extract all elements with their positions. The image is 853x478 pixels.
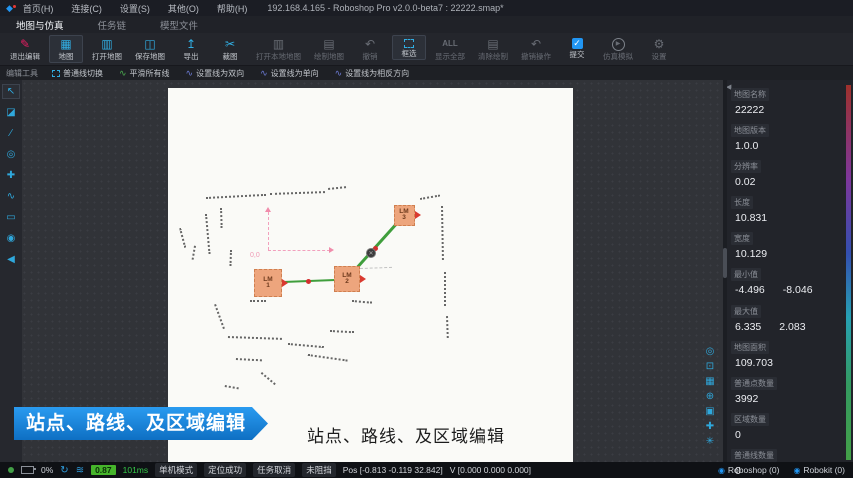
smooth-all-lines[interactable]: ∿ 平滑所有线 xyxy=(119,68,170,79)
toolbar-label: 打开本地地图 xyxy=(256,52,301,61)
toolbar-label: 撤销 xyxy=(363,52,378,61)
settings-button[interactable]: ⚙ 设置 xyxy=(642,35,676,63)
curve-tool[interactable]: ∿ xyxy=(2,189,20,204)
view-control-icon: ⊡ xyxy=(706,361,714,372)
map-sheet[interactable] xyxy=(168,88,573,462)
panel-row-label: 地图面积 xyxy=(731,341,769,354)
station-tool[interactable]: ◉ xyxy=(2,231,20,246)
toolbar-icon: ↥ xyxy=(186,37,196,51)
view-control-icon: ▣ xyxy=(705,406,714,417)
robot-marker[interactable]: ✕ xyxy=(366,248,376,258)
curve-icon: ∿ xyxy=(335,68,343,79)
commit-button[interactable]: ✓ 提交 xyxy=(560,35,594,61)
lidar-wall-segment xyxy=(444,272,446,306)
curve-icon xyxy=(52,70,60,77)
toolbar-label: 清除绘制 xyxy=(478,52,508,61)
curve-icon: ∿ xyxy=(186,68,194,79)
panel-row-label: 最小值 xyxy=(731,268,761,281)
rail-tool-icon: ▭ xyxy=(6,212,15,223)
panel-row-label: 地图名称 xyxy=(731,88,769,101)
reset-view-button[interactable]: ✳ xyxy=(706,436,714,448)
toolbar-icon: ALL xyxy=(442,37,458,51)
crop-map-button[interactable]: ✂ 裁图 xyxy=(213,35,247,63)
panel-row-value: 22222 xyxy=(735,104,843,116)
toolbar-label: 地图 xyxy=(59,52,74,61)
rail-tool-icon: ↖ xyxy=(7,86,15,97)
toolbar-icon: ▶ xyxy=(612,38,625,51)
toolbar-label: 裁图 xyxy=(223,52,238,61)
select-tool[interactable]: ↖ xyxy=(2,84,20,99)
pan-button[interactable]: ✚ xyxy=(706,421,714,433)
back-tool[interactable]: ◀ xyxy=(2,252,20,267)
toolbar-icon: ▤ xyxy=(487,37,498,51)
status-bar: 0% ↻ ≋ 0.87 101ms 单机模式定位成功任务取消未阻挡 Pos [-… xyxy=(0,462,853,478)
toolbar-label: 退出编辑 xyxy=(10,52,40,61)
edit-tool-label: 设置线为双向 xyxy=(196,68,244,79)
panel-row: 地图版本 1.0.0 xyxy=(731,120,843,152)
panel-row-value: 0 xyxy=(735,465,843,477)
edit-tool-label: 设置线为单向 xyxy=(271,68,319,79)
rail-tool-icon: ✚ xyxy=(7,170,15,181)
tab-model-files[interactable]: 模型文件 xyxy=(156,16,202,34)
panel-row-label: 宽度 xyxy=(731,232,753,245)
velocity-readout: V [0.000 0.000 0.000] xyxy=(450,465,531,475)
main-toolbar: ✎ 退出编辑 ▦ 地图 ▥ 打开地图 ◫ 保存地图 ↥ 导出 xyxy=(0,33,853,66)
toolbar-label: 导出 xyxy=(184,52,199,61)
view-control-icon: ✚ xyxy=(706,421,714,432)
simulate-button[interactable]: ▶ 仿真模拟 xyxy=(599,35,637,63)
panel-row-value: 10.129 xyxy=(735,248,843,260)
menu-help[interactable]: 帮助(H) xyxy=(217,2,248,15)
export-button[interactable]: ↥ 导出 xyxy=(174,35,208,63)
panel-row-label: 区域数量 xyxy=(731,413,769,426)
station-number: 1 xyxy=(266,283,270,290)
panel-row-value: 3992 xyxy=(735,393,843,405)
panel-rows: 地图名称 22222 地图版本 1.0.0 分辨率 0.02 xyxy=(731,84,843,478)
status-chip: 未阻挡 xyxy=(302,463,336,477)
status-chips: 单机模式定位成功任务取消未阻挡 xyxy=(155,463,336,477)
panel-row-value: 0 xyxy=(735,429,843,441)
edit-tools-row: 编辑工具 普通线切换 ∿ 平滑所有线 ∿ 设置线为双向 xyxy=(0,66,853,80)
rail-tool-icon: ◎ xyxy=(7,149,16,160)
properties-panel: ◀ 地图名称 22222 地图版本 1.0.0 xyxy=(723,80,853,462)
toolbar-label: 绘制地图 xyxy=(314,52,344,61)
move-tool[interactable]: ✚ xyxy=(2,168,20,183)
tab-map-simulation[interactable]: 地图与仿真 xyxy=(12,16,68,34)
station-number: 2 xyxy=(345,279,349,286)
status-dot-icon xyxy=(8,467,14,473)
connection-dot-icon: ◉ xyxy=(718,466,725,475)
edit-tool-label: 设置线为相反方向 xyxy=(345,68,409,79)
point-tool[interactable]: ◎ xyxy=(2,147,20,162)
station-LM3[interactable]: LM3 xyxy=(394,205,415,226)
menubar: 首页(H)连接(C)设置(S)其他(O)帮助(H) xyxy=(23,2,248,15)
panel-row-label: 地图版本 xyxy=(731,124,769,137)
battery-icon xyxy=(21,466,34,474)
panel-row-value: 1.0.0 xyxy=(735,140,843,152)
tutorial-banner: 站点、路线、及区域编辑 xyxy=(14,407,268,440)
menu-other[interactable]: 其他(O) xyxy=(168,2,199,15)
station-direction-arrow-icon xyxy=(282,279,288,287)
panel-row: 宽度 10.129 xyxy=(731,228,843,260)
set-line-oneway[interactable]: ∿ 设置线为单向 xyxy=(260,68,319,79)
app-window: ◆ 首页(H)连接(C)设置(S)其他(O)帮助(H) 192.168.4.16… xyxy=(0,0,853,478)
panel-row: 长度 10.831 xyxy=(731,192,843,224)
undo-op-button[interactable]: ↶ 撤销操作 xyxy=(517,35,555,63)
rail-tool-icon: ◉ xyxy=(7,233,16,244)
toolbar-label: 仿真模拟 xyxy=(603,52,633,61)
waypoint-dot[interactable] xyxy=(306,279,311,284)
station-direction-arrow-icon xyxy=(415,211,421,219)
station-LM1[interactable]: LM1 xyxy=(254,269,282,297)
menu-home[interactable]: 首页(H) xyxy=(23,2,54,15)
toolbar-icon: ▦ xyxy=(60,37,71,51)
layers-button[interactable]: ▣ xyxy=(705,406,714,418)
curve-icon: ∿ xyxy=(119,68,127,79)
panel-row: 普通点数量 3992 xyxy=(731,373,843,405)
edit-tools-label: 编辑工具 xyxy=(6,68,38,79)
toolbar-icon: ✎ xyxy=(20,37,30,51)
fit-view-button[interactable]: ⊡ xyxy=(706,361,714,373)
wifi-icon[interactable]: ≋ xyxy=(76,465,84,476)
set-line-reverse[interactable]: ∿ 设置线为相反方向 xyxy=(335,68,410,79)
save-map-button[interactable]: ◫ 保存地图 xyxy=(131,35,169,63)
show-all-button[interactable]: ALL 显示全部 xyxy=(431,35,469,63)
panel-row: 区域数量 0 xyxy=(731,409,843,441)
edit-tool-buttons: 普通线切换 ∿ 平滑所有线 ∿ 设置线为双向 ∿ 设置线为单向 xyxy=(52,68,409,79)
lidar-wall-segment xyxy=(250,300,266,302)
tab-row: 地图与仿真任务链模型文件 xyxy=(0,16,853,33)
localization-score: 0.87 xyxy=(91,465,116,475)
toolbar-icon xyxy=(404,39,414,48)
toolbar-icon: ↶ xyxy=(365,37,375,51)
clear-draw-button[interactable]: ▤ 清除绘制 xyxy=(474,35,512,63)
app-logo-icon: ◆ xyxy=(6,3,13,14)
panel-row-value: 10.831 xyxy=(735,212,843,224)
tab-task-chain[interactable]: 任务链 xyxy=(94,16,131,34)
view-control-icon: ◎ xyxy=(706,346,715,357)
view-control-icon: ▦ xyxy=(705,376,714,387)
window-title: 192.168.4.165 - Roboshop Pro v2.0.0-beta… xyxy=(267,3,503,13)
open-local-map-button[interactable]: ▥ 打开本地地图 xyxy=(252,35,305,63)
map-button[interactable]: ▦ 地图 xyxy=(49,35,83,63)
titlebar: ◆ 首页(H)连接(C)设置(S)其他(O)帮助(H) 192.168.4.16… xyxy=(0,0,853,16)
panel-row-label: 普通点数量 xyxy=(731,377,777,390)
toolbar-icon: ▤ xyxy=(323,37,334,51)
panel-row: 地图名称 22222 xyxy=(731,84,843,116)
rail-tool-icon: ◀ xyxy=(7,254,15,265)
toolbar-label: 提交 xyxy=(570,50,585,59)
panel-row-value: 6.3352.083 xyxy=(735,321,843,333)
station-LM2[interactable]: LM2 xyxy=(334,266,360,292)
status-chip: 单机模式 xyxy=(155,463,197,477)
battery-percent: 0% xyxy=(41,465,53,475)
toolbar-label: 保存地图 xyxy=(135,52,165,61)
panel-row-value: 109.703 xyxy=(735,357,843,369)
panel-row-value: 0.02 xyxy=(735,176,843,188)
panel-row-label: 普通线数量 xyxy=(731,449,777,462)
curve-icon: ∿ xyxy=(260,68,268,79)
grid-toggle-button[interactable]: ▦ xyxy=(705,376,714,388)
station-direction-arrow-icon xyxy=(360,275,366,283)
toolbar-label: 显示全部 xyxy=(435,52,465,61)
toolbar-icon: ✂ xyxy=(225,37,235,51)
normal-line-toggle[interactable]: 普通线切换 xyxy=(52,68,103,79)
toolbar-icon: ▥ xyxy=(101,37,112,51)
rail-tool-icon: ∕ xyxy=(10,128,12,139)
toolbar-icon: ⚙ xyxy=(654,37,665,51)
origin-x-axis xyxy=(268,250,330,251)
color-scale-strip xyxy=(846,85,851,460)
rail-tool-icon: ∿ xyxy=(7,191,15,202)
draw-map-button[interactable]: ▤ 绘制地图 xyxy=(310,35,348,63)
position-readout: Pos [-0.813 -0.119 32.842] xyxy=(343,465,443,475)
status-chip: 定位成功 xyxy=(204,463,246,477)
undo-button[interactable]: ↶ 撤销 xyxy=(353,35,387,63)
locate-view-button[interactable]: ◎ xyxy=(706,346,715,358)
eraser-tool[interactable]: ◪ xyxy=(2,105,20,120)
toolbar-icon: ↶ xyxy=(531,37,541,51)
edit-tool-label: 普通线切换 xyxy=(63,68,103,79)
line-tool[interactable]: ∕ xyxy=(2,126,20,141)
exit-edit-button[interactable]: ✎ 退出编辑 xyxy=(6,35,44,63)
panel-row-value: -4.496-8.046 xyxy=(735,284,843,296)
rail-tool-icon: ◪ xyxy=(6,107,15,118)
menu-connect[interactable]: 连接(C) xyxy=(71,2,102,15)
panel-row-label: 分辨率 xyxy=(731,160,761,173)
box-select-button[interactable]: 框选 xyxy=(392,35,426,60)
view-controls: ◎ ⊡ ▦ ⊕ ▣ ✚ ✳ xyxy=(701,346,719,448)
origin-x-arrow-icon xyxy=(329,247,334,253)
toolbar-label: 撤销操作 xyxy=(521,52,551,61)
panel-row: 普通线数量 0 xyxy=(731,445,843,477)
panel-row: 分辨率 0.02 xyxy=(731,156,843,188)
toolbar-label: 打开地图 xyxy=(92,52,122,61)
open-map-button[interactable]: ▥ 打开地图 xyxy=(88,35,126,63)
refresh-icon[interactable]: ↻ xyxy=(60,465,68,476)
left-tool-rail: ↖ ◪ ∕ ◎ ✚ ∿ ▭ xyxy=(0,80,22,462)
origin-y-axis xyxy=(268,212,269,250)
toolbar-icon: ✓ xyxy=(572,38,583,49)
panel-row: 最大值 6.3352.083 xyxy=(731,301,843,333)
panel-row-label: 最大值 xyxy=(731,305,761,318)
latency-value: 101ms xyxy=(123,465,149,475)
view-control-icon: ✳ xyxy=(706,436,714,447)
toolbar-label: 设置 xyxy=(652,52,667,61)
origin-y-arrow-icon xyxy=(265,207,271,212)
zoom-button[interactable]: ⊕ xyxy=(706,391,714,403)
map-caption: 站点、路线、及区域编辑 xyxy=(296,422,516,447)
panel-row-label: 长度 xyxy=(731,196,753,209)
menu-settings[interactable]: 设置(S) xyxy=(120,2,150,15)
status-chip: 任务取消 xyxy=(253,463,295,477)
panel-scrollbar xyxy=(723,80,727,462)
toolbar-icon: ▥ xyxy=(273,37,284,51)
origin-label: 0,0 xyxy=(250,252,260,259)
edit-tool-label: 平滑所有线 xyxy=(130,68,170,79)
panel-scrollbar-thumb[interactable] xyxy=(723,248,727,278)
panel-row: 地图面积 109.703 xyxy=(731,337,843,369)
station-number: 3 xyxy=(402,215,406,222)
toolbar-icon: ◫ xyxy=(144,37,155,51)
panel-row: 最小值 -4.496-8.046 xyxy=(731,264,843,296)
view-control-icon: ⊕ xyxy=(706,391,714,402)
set-line-bidirectional[interactable]: ∿ 设置线为双向 xyxy=(186,68,245,79)
toolbar-label: 框选 xyxy=(402,49,417,58)
area-tool[interactable]: ▭ xyxy=(2,210,20,225)
